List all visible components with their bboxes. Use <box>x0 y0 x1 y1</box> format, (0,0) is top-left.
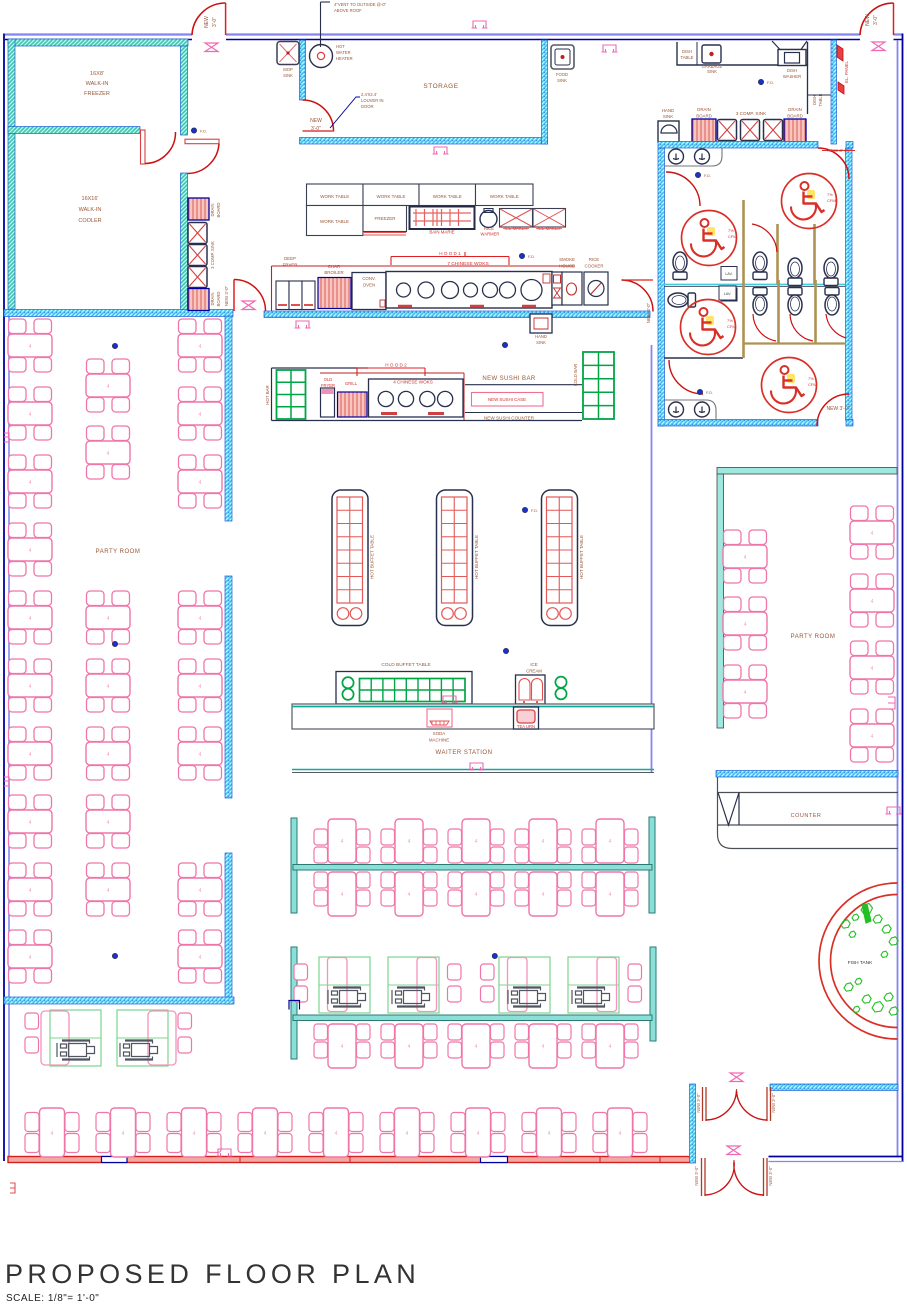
svg-text:HOT BUFFET TABLE: HOT BUFFET TABLE <box>579 535 584 579</box>
svg-text:FRYER: FRYER <box>283 263 298 268</box>
svg-text:BAIN MARIE: BAIN MARIE <box>429 230 454 235</box>
svg-text:SODA: SODA <box>433 731 446 736</box>
svg-text:LAV.: LAV. <box>724 292 732 296</box>
svg-text:3'-0": 3'-0" <box>212 17 218 27</box>
svg-text:CFM: CFM <box>728 234 737 239</box>
svg-text:HOT BUFFET TABLE: HOT BUFFET TABLE <box>474 535 479 579</box>
svg-text:WARMER: WARMER <box>481 232 500 237</box>
svg-text:MACHINE: MACHINE <box>429 738 449 743</box>
svg-text:CREAM: CREAM <box>526 669 542 674</box>
svg-text:DISH: DISH <box>787 68 797 73</box>
svg-text:ABOVE ROOF: ABOVE ROOF <box>334 8 362 13</box>
svg-text:4"VENT TO OUTSIDE @-0": 4"VENT TO OUTSIDE @-0" <box>334 2 387 7</box>
svg-text:FRYER: FRYER <box>321 383 335 388</box>
svg-text:NEW 3'-0": NEW 3'-0" <box>694 1166 699 1186</box>
svg-text:DRAIN: DRAIN <box>788 107 802 112</box>
svg-text:HAND: HAND <box>662 108 674 113</box>
svg-text:LOUVER IN: LOUVER IN <box>361 98 384 103</box>
svg-text:DOOR: DOOR <box>361 104 374 109</box>
svg-text:WASHER: WASHER <box>783 74 801 79</box>
svg-text:NEW: NEW <box>204 16 210 28</box>
svg-text:NEW SUSHI CASE: NEW SUSHI CASE <box>488 397 526 402</box>
svg-text:F.D.: F.D. <box>704 173 711 178</box>
svg-text:TABLE: TABLE <box>681 55 694 60</box>
svg-text:16X16': 16X16' <box>82 196 99 202</box>
svg-text:WORK TABLE: WORK TABLE <box>320 194 349 199</box>
svg-text:CHAR: CHAR <box>328 264 340 269</box>
svg-text:NEW: NEW <box>865 14 871 26</box>
svg-text:COLD BUFFET TABLE: COLD BUFFET TABLE <box>381 662 430 668</box>
svg-text:3 COMP. SINK: 3 COMP. SINK <box>736 111 767 116</box>
svg-text:H O O D 1: H O O D 1 <box>439 251 461 256</box>
svg-text:NEW 3'-0": NEW 3'-0" <box>768 1166 773 1186</box>
svg-text:NEW 3'-0": NEW 3'-0" <box>771 1093 776 1113</box>
svg-text:WATER: WATER <box>336 50 351 55</box>
svg-text:PARTY ROOM: PARTY ROOM <box>96 549 141 555</box>
svg-text:F.D.: F.D. <box>706 390 713 395</box>
svg-text:COLD BAR: COLD BAR <box>573 364 578 386</box>
svg-text:SINK: SINK <box>283 73 293 78</box>
svg-text:3'-0": 3'-0" <box>311 126 321 132</box>
svg-text:WAITER STATION: WAITER STATION <box>436 750 493 756</box>
svg-text:H O O D 2: H O O D 2 <box>385 363 407 368</box>
svg-text:F.D.: F.D. <box>531 508 538 513</box>
svg-text:COOKER: COOKER <box>584 264 603 269</box>
svg-text:SINK: SINK <box>707 69 717 74</box>
svg-text:NEW: NEW <box>310 118 322 124</box>
svg-text:DRAIN: DRAIN <box>210 203 215 216</box>
svg-text:CFM: CFM <box>808 382 817 387</box>
svg-text:WORK TABLE: WORK TABLE <box>320 219 349 224</box>
svg-text:COUNTER: COUNTER <box>791 813 822 819</box>
svg-text:OLD: OLD <box>324 377 333 382</box>
svg-text:FISH TANK: FISH TANK <box>848 960 873 966</box>
svg-text:HAND: HAND <box>535 334 547 339</box>
svg-text:FOOD: FOOD <box>556 72 568 77</box>
svg-text:NEW SUSHI COUNTER: NEW SUSHI COUNTER <box>484 416 535 421</box>
svg-text:4 CHINESE WOKS: 4 CHINESE WOKS <box>393 380 433 385</box>
svg-text:PROPOSED FLOOR PLAN: PROPOSED FLOOR PLAN <box>5 1259 420 1289</box>
svg-text:NEW 3'-0": NEW 3'-0" <box>646 302 651 323</box>
svg-text:MOP: MOP <box>283 67 293 72</box>
svg-text:SINK: SINK <box>663 114 673 119</box>
svg-text:WALK-IN: WALK-IN <box>86 81 109 87</box>
svg-text:7%: 7% <box>808 376 814 381</box>
svg-text:DISH: DISH <box>812 95 817 105</box>
svg-text:STORAGE: STORAGE <box>423 83 458 90</box>
svg-text:F.D.: F.D. <box>200 129 207 134</box>
svg-text:HOUSE: HOUSE <box>559 264 575 269</box>
svg-text:SCALE: 1/8"= 1'-0": SCALE: 1/8"= 1'-0" <box>6 1293 99 1304</box>
svg-text:LAV.: LAV. <box>725 272 733 276</box>
svg-text:BOARD: BOARD <box>216 203 221 218</box>
svg-text:F.D.: F.D. <box>767 80 774 85</box>
svg-text:DEEP: DEEP <box>284 256 296 261</box>
svg-text:CFM: CFM <box>727 324 736 329</box>
svg-text:GRILL: GRILL <box>345 381 358 386</box>
svg-text:BOARD: BOARD <box>696 114 712 119</box>
svg-text:7 CHINESE WOKS: 7 CHINESE WOKS <box>447 261 488 267</box>
svg-text:DRAIN: DRAIN <box>210 292 215 305</box>
svg-text:BOARD: BOARD <box>216 292 221 307</box>
svg-text:PARTY ROOM: PARTY ROOM <box>791 634 836 640</box>
svg-text:HOT: HOT <box>336 44 345 49</box>
svg-text:WORK TABLE: WORK TABLE <box>376 194 405 199</box>
svg-text:SINK: SINK <box>536 340 546 345</box>
svg-text:3'-0": 3'-0" <box>873 15 879 25</box>
svg-text:7%: 7% <box>727 318 733 323</box>
svg-text:RICE: RICE <box>484 226 494 231</box>
svg-text:NEW 3'-0": NEW 3'-0" <box>826 406 849 412</box>
svg-text:DISH: DISH <box>682 49 692 54</box>
svg-text:CONV.: CONV. <box>362 276 376 281</box>
svg-text:NEW SUSHI BAR: NEW SUSHI BAR <box>482 376 535 382</box>
svg-text:NEW 3'-0": NEW 3'-0" <box>696 1093 701 1113</box>
svg-text:WALK-IN: WALK-IN <box>79 207 102 213</box>
svg-text:HOT BAR: HOT BAR <box>265 385 270 404</box>
svg-text:HEATER: HEATER <box>336 56 353 61</box>
svg-text:WORK TABLE: WORK TABLE <box>490 194 519 199</box>
svg-text:TEA URN: TEA URN <box>517 724 535 729</box>
svg-text:7%: 7% <box>728 228 734 233</box>
svg-text:3 COMP. SINK: 3 COMP. SINK <box>210 241 215 269</box>
svg-text:COOLER: COOLER <box>78 218 101 224</box>
svg-text:WORK TABLE: WORK TABLE <box>433 194 462 199</box>
svg-text:ICE: ICE <box>530 662 537 667</box>
svg-text:FREEZER: FREEZER <box>374 216 396 221</box>
svg-text:NEW 3'-0": NEW 3'-0" <box>224 285 229 306</box>
svg-text:RICE: RICE <box>589 257 600 262</box>
svg-text:BROILER: BROILER <box>324 270 343 275</box>
svg-text:7%: 7% <box>827 192 833 197</box>
svg-text:SINK: SINK <box>557 78 567 83</box>
svg-text:DRAIN: DRAIN <box>697 107 711 112</box>
svg-text:CFM: CFM <box>827 198 836 203</box>
svg-text:2.4'X2.4': 2.4'X2.4' <box>361 92 377 97</box>
svg-text:F.D.: F.D. <box>528 254 535 259</box>
svg-text:16X8': 16X8' <box>90 71 104 77</box>
svg-text:HOT BUFFET TABLE: HOT BUFFET TABLE <box>370 535 375 579</box>
svg-text:OVEN: OVEN <box>363 283 375 288</box>
svg-text:SMOKE: SMOKE <box>559 257 575 262</box>
svg-text:FREEZER: FREEZER <box>84 91 110 97</box>
svg-text:BOARD: BOARD <box>787 114 803 119</box>
svg-text:EL. PANEL: EL. PANEL <box>844 61 849 83</box>
